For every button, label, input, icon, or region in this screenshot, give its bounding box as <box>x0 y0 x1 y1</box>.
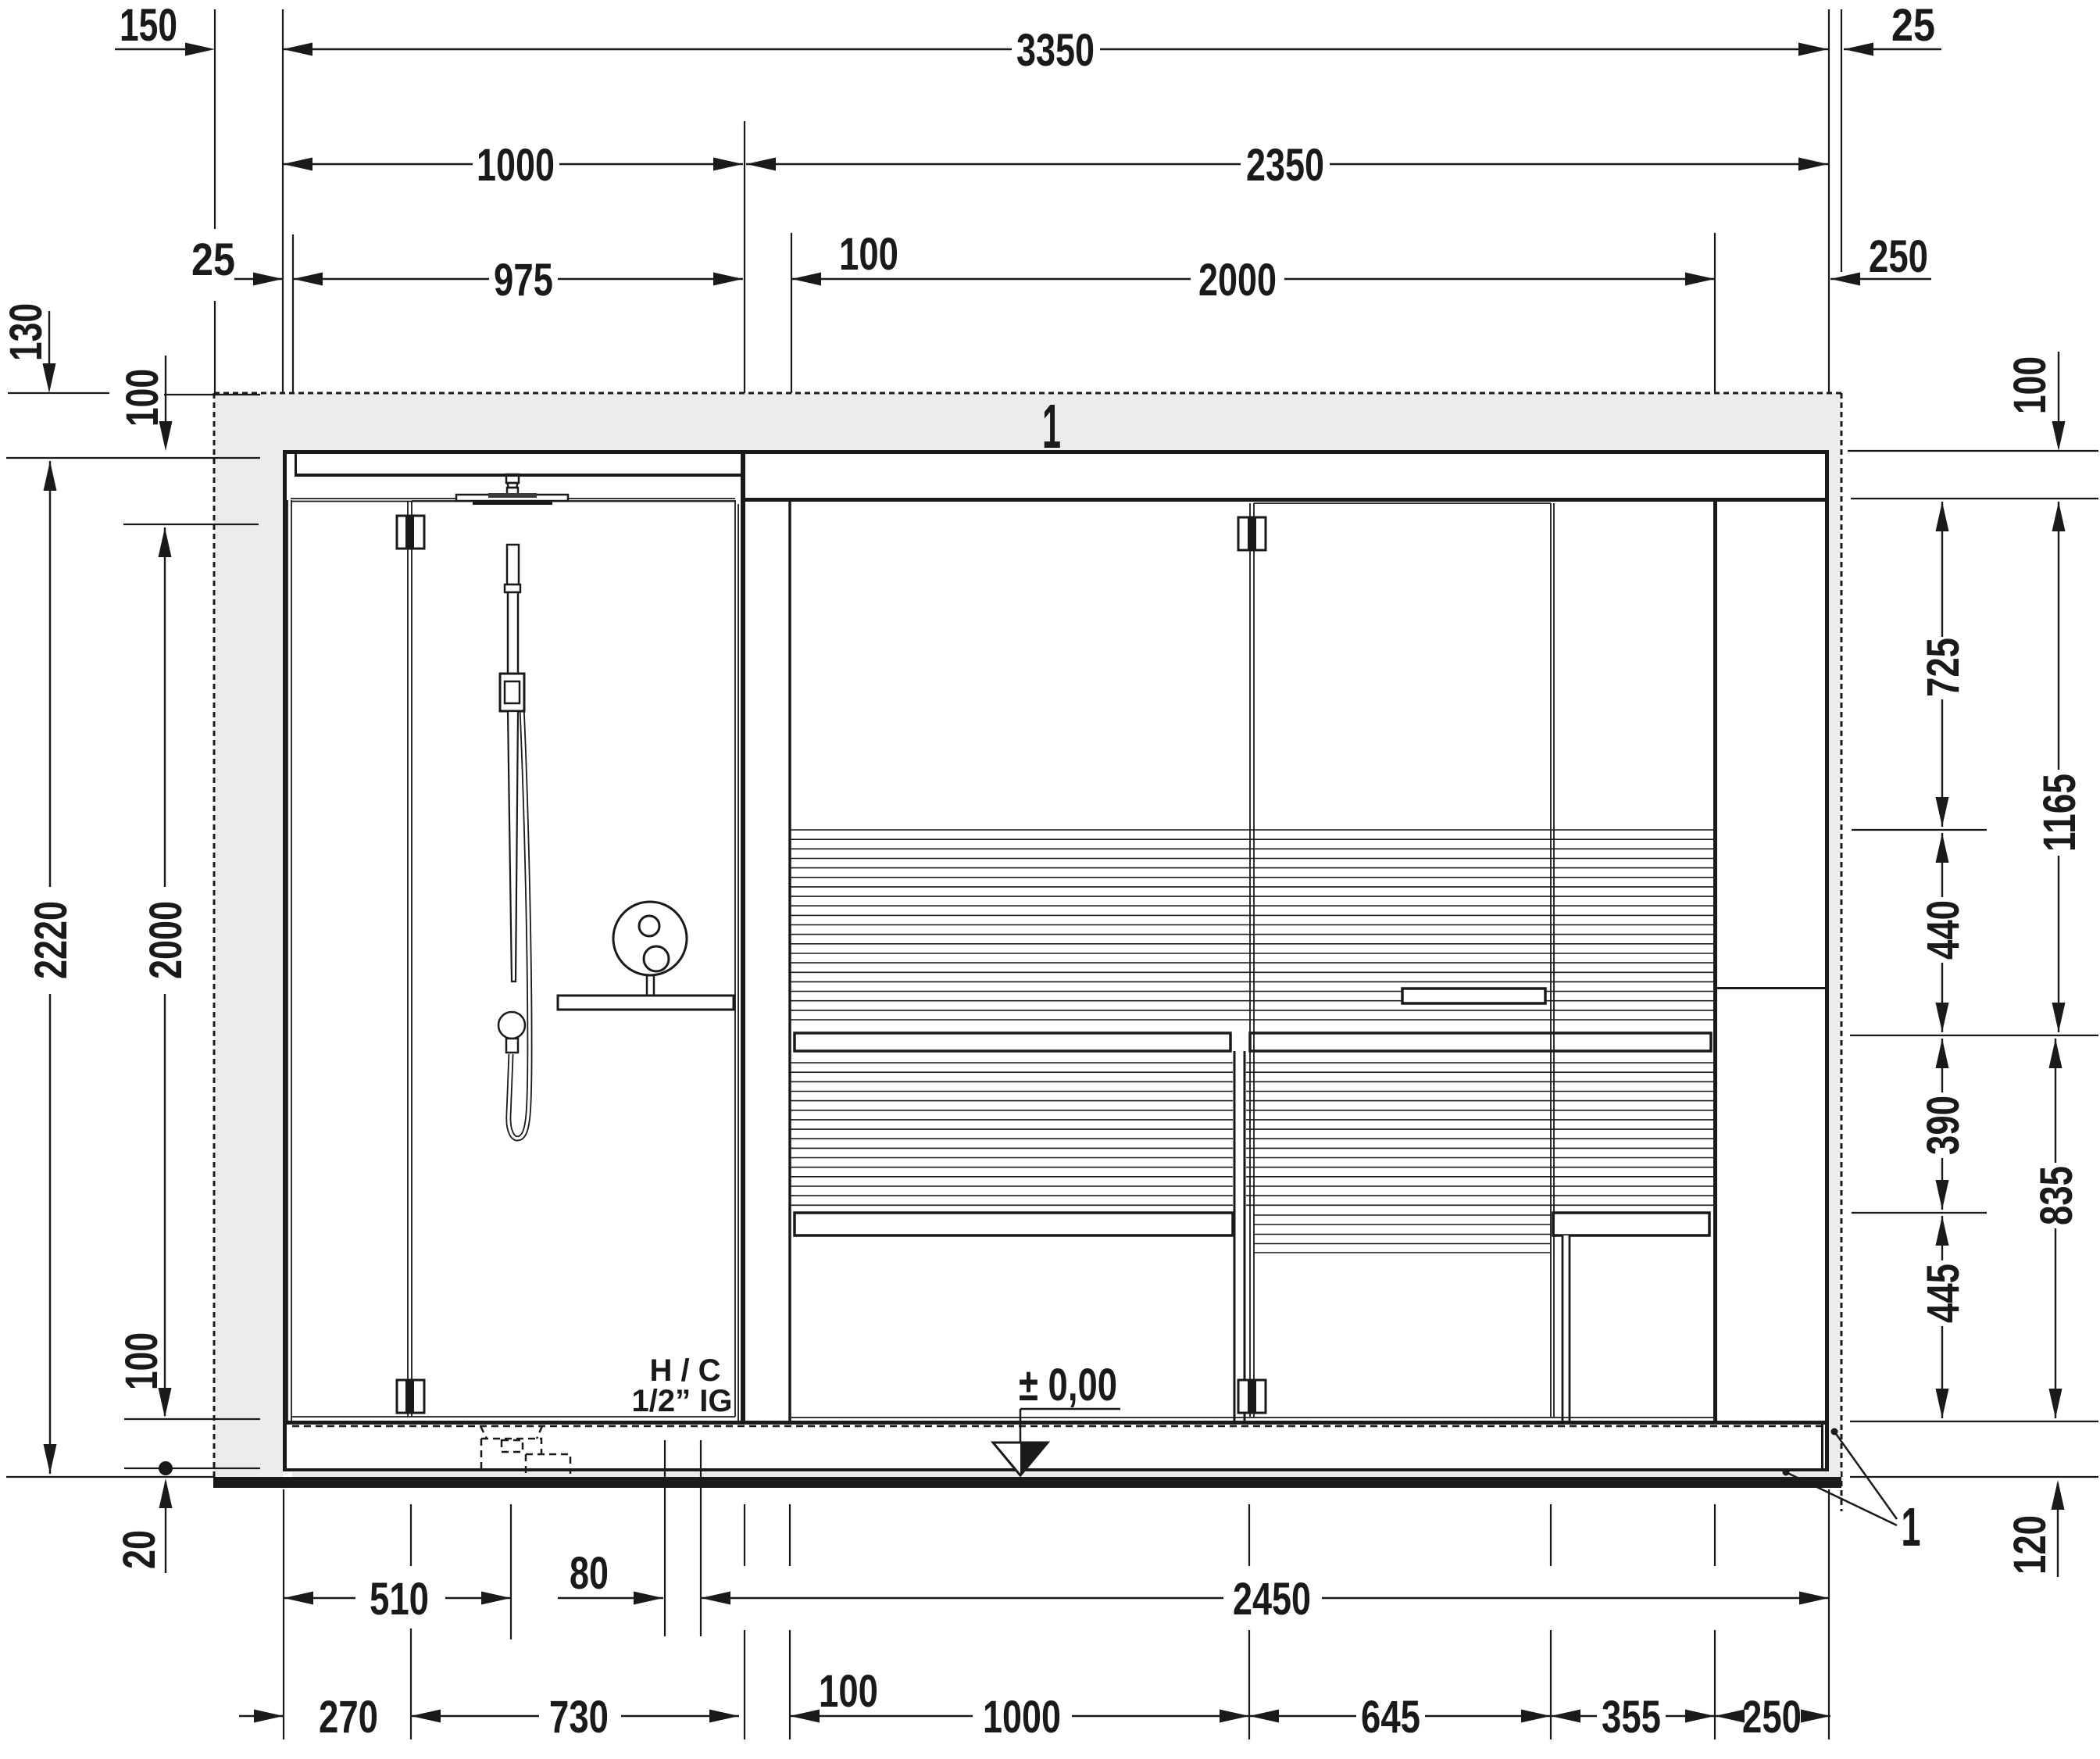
svg-text:250: 250 <box>1742 1692 1802 1743</box>
svg-text:355: 355 <box>1602 1692 1661 1743</box>
svg-text:835: 835 <box>2031 1166 2082 1225</box>
svg-text:2000: 2000 <box>1198 255 1277 306</box>
svg-text:1000: 1000 <box>983 1692 1061 1743</box>
svg-text:2000: 2000 <box>141 901 191 979</box>
svg-text:20: 20 <box>114 1530 165 1569</box>
svg-text:975: 975 <box>494 255 553 306</box>
svg-text:1165: 1165 <box>2034 774 2085 852</box>
svg-text:100: 100 <box>116 1332 167 1390</box>
svg-text:390: 390 <box>1918 1096 1969 1155</box>
svg-text:H / C: H / C <box>649 1353 720 1388</box>
svg-text:1/2” IG: 1/2” IG <box>632 1384 733 1418</box>
svg-text:100: 100 <box>839 229 898 280</box>
svg-text:100: 100 <box>819 1666 878 1717</box>
svg-text:150: 150 <box>120 0 177 51</box>
svg-text:445: 445 <box>1918 1264 1969 1323</box>
svg-text:130: 130 <box>1 303 52 361</box>
svg-text:25: 25 <box>191 234 235 285</box>
svg-text:± 0,00: ± 0,00 <box>1019 1360 1117 1410</box>
svg-text:1000: 1000 <box>477 140 555 191</box>
svg-text:1: 1 <box>1042 391 1061 461</box>
svg-text:645: 645 <box>1361 1692 1420 1743</box>
svg-text:2450: 2450 <box>1233 1574 1311 1625</box>
svg-text:100: 100 <box>2005 356 2055 414</box>
svg-text:725: 725 <box>1918 638 1969 697</box>
svg-text:3350: 3350 <box>1016 25 1095 76</box>
svg-text:510: 510 <box>370 1574 429 1625</box>
svg-text:1: 1 <box>1902 1496 1921 1557</box>
svg-text:2220: 2220 <box>26 901 77 979</box>
svg-text:250: 250 <box>1869 231 1928 282</box>
svg-text:25: 25 <box>1891 0 1935 51</box>
svg-text:80: 80 <box>570 1548 609 1599</box>
svg-text:270: 270 <box>319 1692 378 1743</box>
svg-text:2350: 2350 <box>1246 140 1324 191</box>
svg-text:730: 730 <box>549 1692 609 1743</box>
svg-text:440: 440 <box>1918 900 1969 960</box>
svg-text:100: 100 <box>117 369 168 427</box>
svg-text:120: 120 <box>2005 1515 2055 1575</box>
